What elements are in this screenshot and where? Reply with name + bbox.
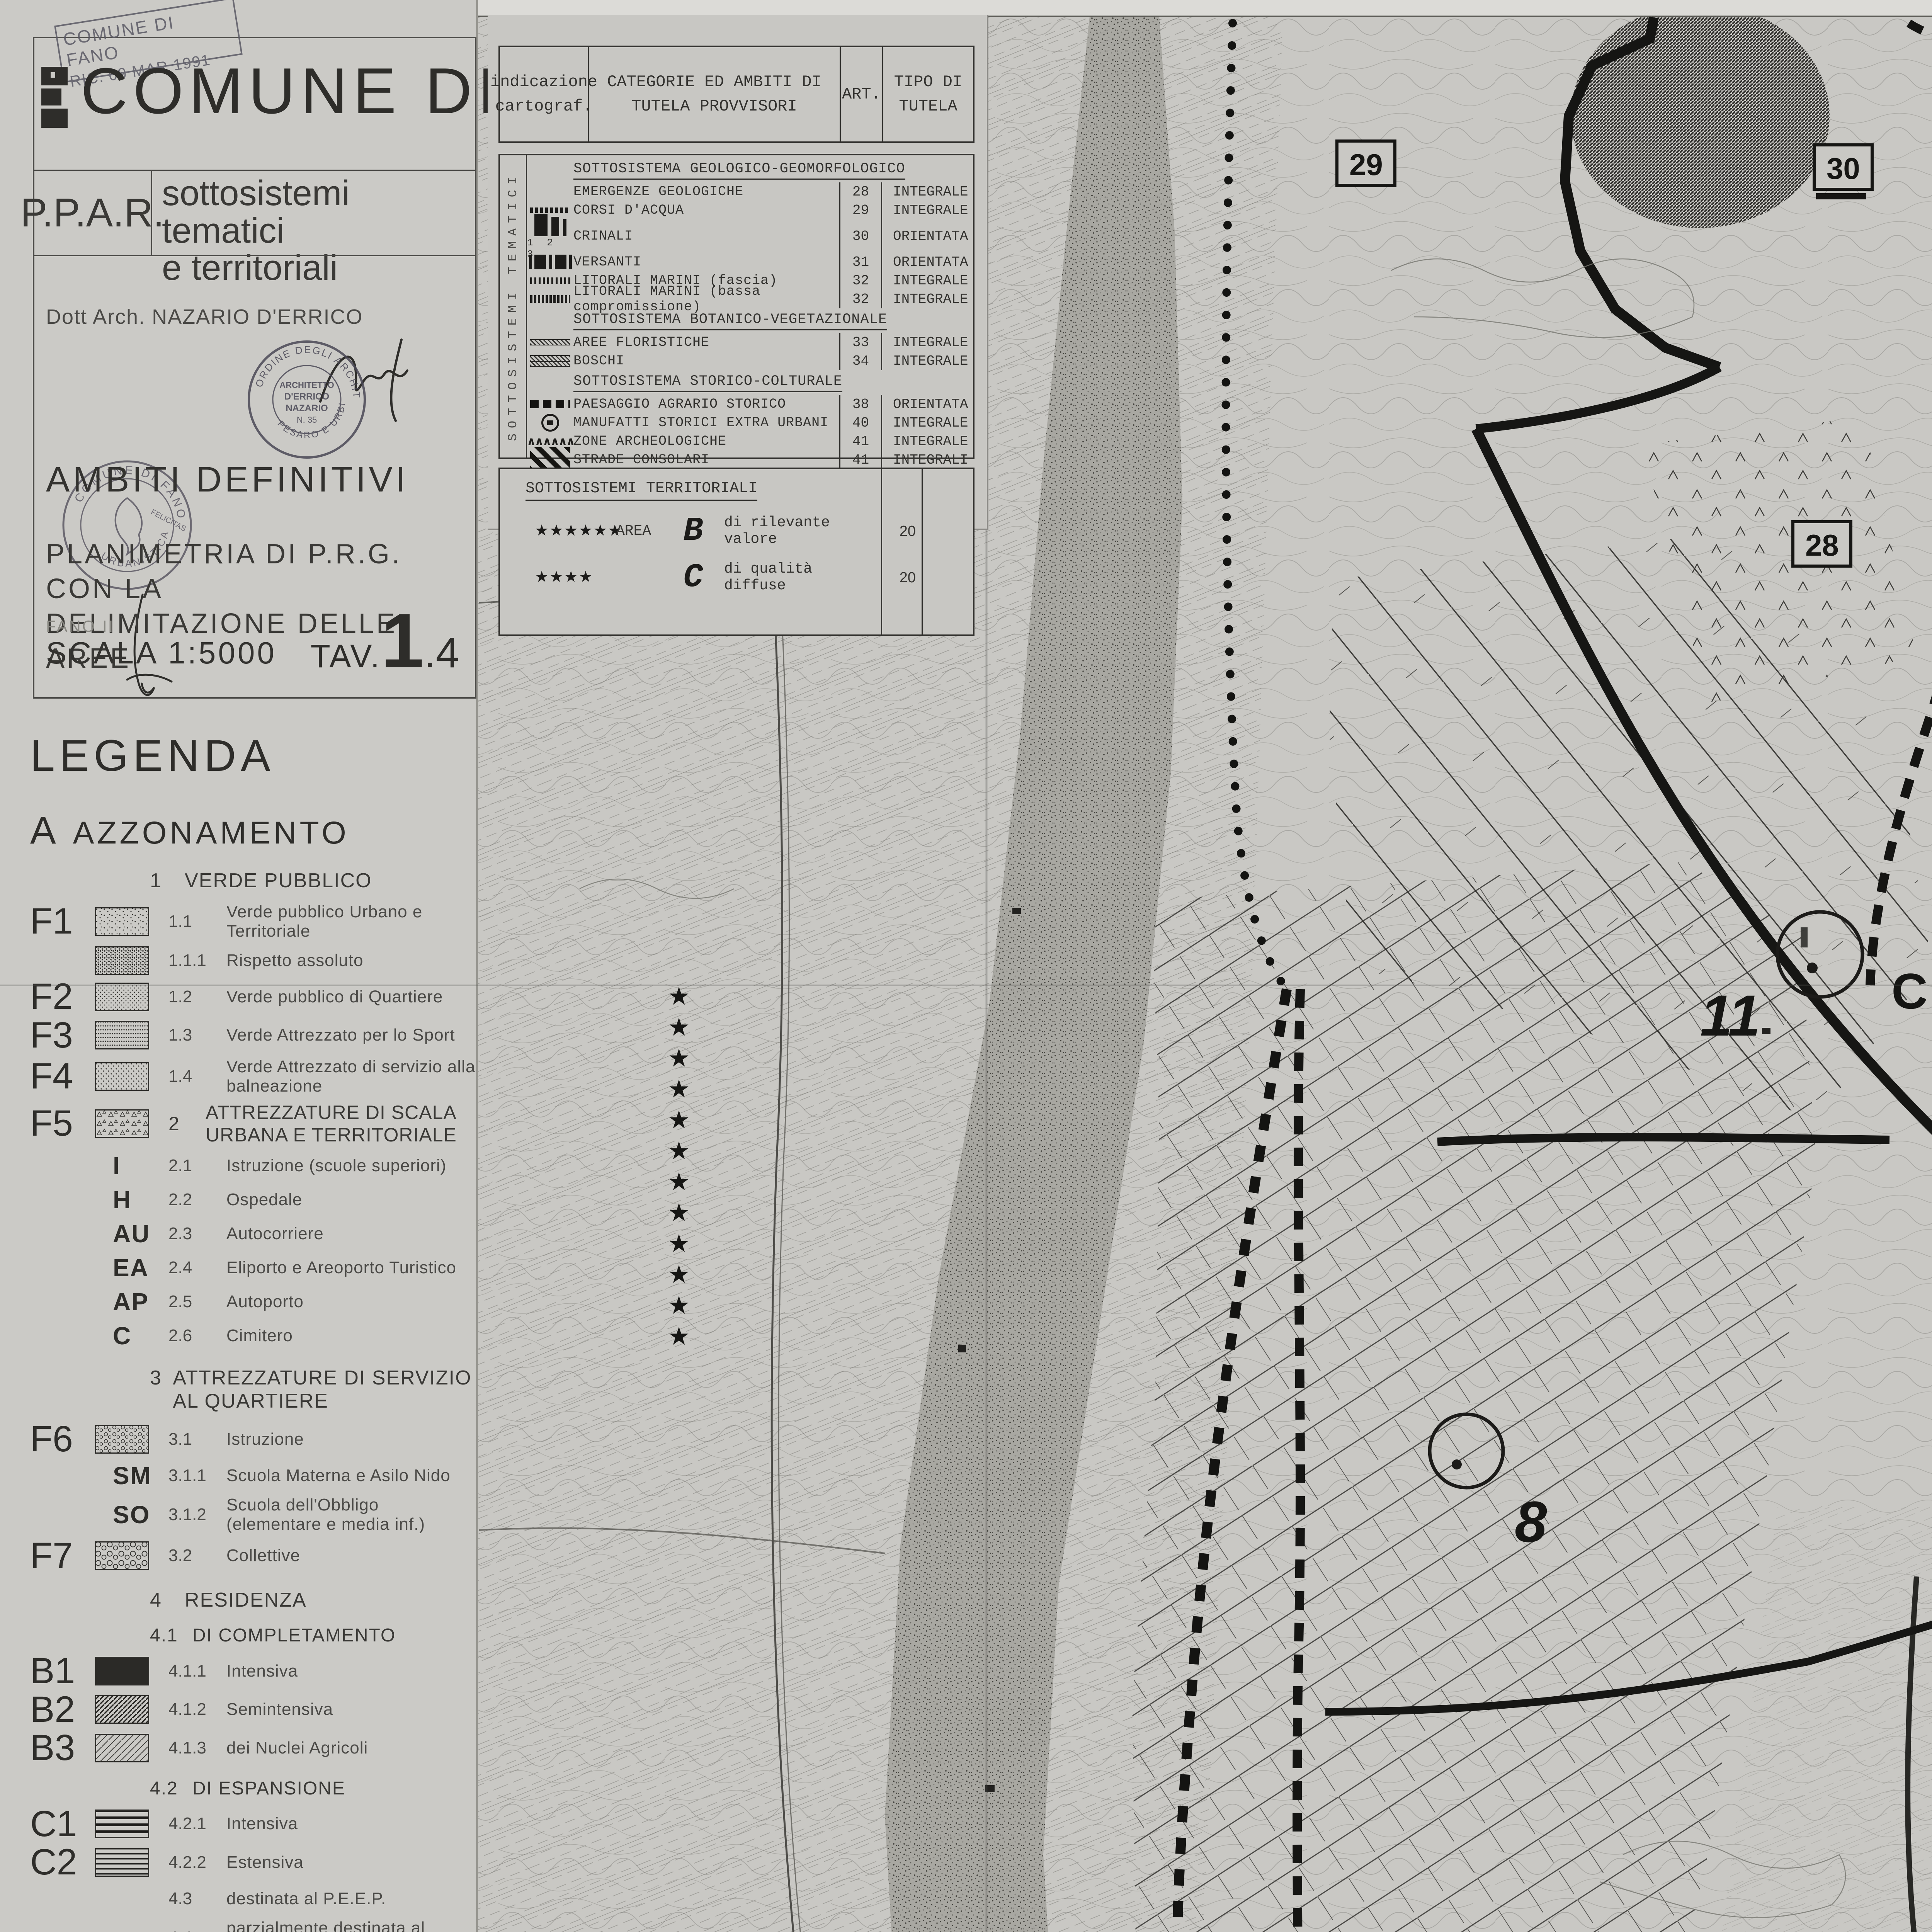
legend-item-label: parzialmente destinata al P.E.E.P. xyxy=(226,1918,476,1932)
tutela-side-label: SOTTOSISTEMI TEMATICI xyxy=(506,172,520,441)
legend-item-label: Rispetto assoluto xyxy=(226,951,476,970)
ticks2-icon xyxy=(530,295,570,303)
zone-letter-code: SO xyxy=(95,1500,150,1529)
versanti-bars-icon xyxy=(529,255,572,269)
zone-swatch-cell xyxy=(95,1810,168,1838)
legend-item-number: 2 xyxy=(168,1112,206,1135)
swatch-pat-circ-s xyxy=(95,1425,149,1454)
stamp1-center1: ARCHITETTO xyxy=(279,380,334,390)
plan-code-row: P.P.A.R. sottosistemi tematici e territo… xyxy=(34,171,475,255)
zone-swatch-cell xyxy=(95,1657,168,1685)
swatch-pat-dots-r xyxy=(95,1021,149,1049)
territoriali-rows: ★★★★★★AREABdi rilevante valore★★★★Cdi qu… xyxy=(500,508,881,634)
tutela-table-body: SOTTOSISTEMI TEMATICI SOTTOSISTEMA GEOLO… xyxy=(498,154,975,459)
tutela-article: 30 xyxy=(839,219,881,253)
well-icon xyxy=(541,414,559,432)
zone-swatch-cell: AP xyxy=(95,1287,168,1316)
tutela-category-label: PAESAGGIO AGRARIO STORICO xyxy=(573,396,839,412)
zone-swatch-cell xyxy=(95,1884,168,1913)
zone-code: C2 xyxy=(30,1846,95,1879)
legend-item-number: 2.5 xyxy=(168,1292,226,1311)
boundary-star-icon: ★ xyxy=(668,1291,690,1319)
tutela-type: INTEGRALE xyxy=(881,201,973,219)
tutela-rows: SOTTOSISTEMA GEOLOGICO-GEOMORFOLOGICOEME… xyxy=(527,158,973,457)
zone-swatch-cell: SO xyxy=(95,1500,168,1529)
tutela-type: INTEGRALE xyxy=(881,333,973,352)
tutela-type: INTEGRALE xyxy=(881,271,973,290)
legend-item-number: 4.2.2 xyxy=(168,1853,226,1872)
legend-item-number: 1.1.1 xyxy=(168,951,226,970)
legend-item-label: Eliporto e Areoporto Turistico xyxy=(226,1258,476,1277)
tutela-type: INTEGRALE xyxy=(881,290,973,308)
tutela-article: 28 xyxy=(839,182,881,201)
article-30-label: 30 xyxy=(1827,151,1860,185)
boundary-star-icon: ★ xyxy=(668,982,690,1010)
legend-item: B24.1.2Semintensiva xyxy=(30,1693,476,1726)
territoriali-art-divider xyxy=(881,469,923,634)
geological-emergency-area xyxy=(1571,4,1830,228)
legend-subgroup-header: 4.2DI ESPANSIONE xyxy=(30,1778,476,1799)
tutela-section-label: SOTTOSISTEMA BOTANICO-VEGETAZIONALE xyxy=(573,311,887,330)
legend-subgroup-header: 4.1DI COMPLETAMENTO xyxy=(30,1625,476,1646)
zone-letter-code: SM xyxy=(95,1461,151,1490)
legend-section-a-letter: A xyxy=(30,808,56,853)
legend-item: 1.1.1Rispetto assoluto xyxy=(30,946,476,975)
zone-swatch-cell: C xyxy=(95,1321,168,1350)
stamp1-center3: NAZARIO xyxy=(286,403,328,413)
legend-item: 4.4parzialmente destinata al P.E.E.P. xyxy=(30,1918,476,1932)
zone-code: F5 xyxy=(30,1107,95,1140)
tutela-type: INTEGRALE xyxy=(881,432,973,451)
squares-symbol-icon xyxy=(527,400,573,408)
swatch-pat-stip-l xyxy=(95,907,149,936)
zone-code: F6 xyxy=(30,1423,95,1456)
tutela-section: SOTTOSISTEMA STORICO-COLTURALE xyxy=(527,370,973,395)
tutela-row: LITORALI MARINI (bassa compromissione)32… xyxy=(527,290,973,308)
col-tipo: TIPO DI TUTELA xyxy=(883,47,973,141)
legend-section-a: A AZZONAMENTO xyxy=(30,808,476,853)
legend-item-label: Estensiva xyxy=(226,1853,476,1872)
tav-number-suffix: .4 xyxy=(424,629,459,677)
area-code: B xyxy=(662,512,724,550)
legend-items: 1VERDE PUBBLICOF11.1Verde pubblico Urban… xyxy=(30,869,476,1932)
zone-swatch-cell xyxy=(95,1021,168,1049)
zone-swatch-cell xyxy=(95,1848,168,1877)
legend-item-number: 3.1.2 xyxy=(168,1505,226,1524)
swatch-pat-hlines-t xyxy=(95,1848,149,1877)
territoriali-title: SOTTOSISTEMI TERRITORIALI xyxy=(526,480,757,501)
area-prefix: AREA xyxy=(616,523,662,539)
zone-letter-code: AP xyxy=(95,1287,149,1316)
sheet-note: FANO II xyxy=(46,617,114,636)
zone-swatch-cell xyxy=(95,1695,168,1724)
tutela-article: 33 xyxy=(839,333,881,352)
ticks-icon xyxy=(530,277,570,284)
comune-logo-icon xyxy=(39,65,70,130)
boundary-star-icon: ★ xyxy=(668,1137,690,1165)
legend-item-number: 4.1.3 xyxy=(168,1738,226,1758)
swatch-sw-solid-d xyxy=(95,1657,149,1685)
legend-item-label: Scuola Materna e Asilo Nido xyxy=(226,1466,476,1485)
tutela-type: INTEGRALE xyxy=(881,413,973,432)
stamp1-center4: N. 35 xyxy=(297,415,317,425)
territoriali-box: SOTTOSISTEMI TERRITORIALI ★★★★★★AREABdi … xyxy=(498,468,975,636)
zone-swatch-cell xyxy=(95,983,168,1011)
hband-symbol-icon xyxy=(527,339,573,345)
zone-letter-code: I xyxy=(95,1151,121,1180)
legend-item: SO3.1.2Scuola dell'Obbligo (elementare e… xyxy=(30,1495,476,1534)
legend-item-label: dei Nuclei Agricoli xyxy=(226,1738,476,1758)
tutela-article: 29 xyxy=(839,201,881,219)
tutela-type: INTEGRALI xyxy=(881,451,973,469)
legend-item-label: Verde pubblico di Quartiere xyxy=(226,987,476,1007)
circled-area-8-label: 8 xyxy=(1515,1489,1547,1554)
tutela-row: PAESAGGIO AGRARIO STORICO38ORIENTATA xyxy=(527,395,973,413)
zone-code: B2 xyxy=(30,1693,95,1726)
tutela-category-label: AREE FLORISTICHE xyxy=(573,335,839,350)
tutela-category-label: CRINALI xyxy=(573,228,839,244)
zone-swatch-cell: AU xyxy=(95,1219,168,1248)
boundary-star-icon: ★ xyxy=(668,1075,690,1103)
tutela-row: 1 2 3CRINALI30ORIENTATA xyxy=(527,219,973,253)
zone-swatch-cell xyxy=(95,1062,168,1091)
zone-swatch-cell xyxy=(95,1734,168,1762)
zone-swatch-cell xyxy=(95,1541,168,1570)
legend-group-number: 3 xyxy=(150,1366,173,1413)
zone-code: F7 xyxy=(30,1539,95,1573)
legend-item: B34.1.3dei Nuclei Agricoli xyxy=(30,1731,476,1765)
zone-c-label: C xyxy=(1891,963,1928,1019)
tav-label-group: TAV.1.4 xyxy=(310,610,459,677)
legend-group-label: VERDE PUBBLICO xyxy=(185,869,372,892)
legend-item-number: 3.1.1 xyxy=(168,1466,226,1485)
legend-item: H2.2Ospedale xyxy=(30,1185,476,1214)
scanned-plan-sheet: { "title_block": { "corner_stamp_line1":… xyxy=(0,0,1932,1932)
tutela-row: AREE FLORISTICHE33INTEGRALE xyxy=(527,333,973,352)
boundary-star-icon: ★ xyxy=(668,1168,690,1196)
swatch-pat-stip-d xyxy=(95,946,149,975)
legend-item-number: 1.2 xyxy=(168,987,226,1007)
swatch-pat-dots-f2 xyxy=(95,1062,149,1091)
tutela-section: SOTTOSISTEMA BOTANICO-VEGETAZIONALE xyxy=(527,308,973,333)
legend-item: 4.3destinata al P.E.E.P. xyxy=(30,1884,476,1913)
plan-code: P.P.A.R. xyxy=(34,171,150,255)
boundary-star-icon: ★ xyxy=(668,1199,690,1226)
territoriali-row: ★★★★Cdi qualità diffuse xyxy=(500,554,881,600)
crinali-symbol-icon: 1 2 3 xyxy=(527,212,573,260)
zone-letter-code: C xyxy=(95,1321,131,1350)
legend-item-number: 3.1 xyxy=(168,1430,226,1449)
none-symbol-icon xyxy=(527,190,573,194)
legend-title: LEGENDA xyxy=(30,730,476,781)
tutela-type: ORIENTATA xyxy=(881,219,973,253)
legend-item-number: 2.6 xyxy=(168,1326,226,1345)
legend-group-header: 4RESIDENZA xyxy=(30,1588,476,1612)
tav-number: 1 xyxy=(381,598,424,684)
legend-item-label: Verde Attrezzato di servizio alla balnea… xyxy=(226,1057,476,1096)
zone-code: F4 xyxy=(30,1060,95,1093)
tutela-row: BOSCHI34INTEGRALE xyxy=(527,352,973,370)
tutela-article: 38 xyxy=(839,395,881,413)
tutela-category-label: BOSCHI xyxy=(573,353,839,369)
ticks-symbol-icon xyxy=(527,277,573,284)
article-29-label: 29 xyxy=(1349,148,1383,182)
zone-swatch-cell: I xyxy=(95,1151,168,1180)
tutela-row: MANUFATTI STORICI EXTRA URBANI40INTEGRAL… xyxy=(527,413,973,432)
legend-section-a-title: AZZONAMENTO xyxy=(73,815,349,851)
tutela-category-label: EMERGENZE GEOLOGICHE xyxy=(573,184,839,199)
tutela-category-label: CORSI D'ACQUA xyxy=(573,202,839,218)
legend-item: I2.1Istruzione (scuole superiori) xyxy=(30,1151,476,1180)
swatch-pat-hlines-k xyxy=(95,1810,149,1838)
legend-item-label: Autoporto xyxy=(226,1292,476,1311)
zone-code: F3 xyxy=(30,1019,95,1052)
article-28-label: 28 xyxy=(1805,528,1839,562)
tutela-row: VERSANTI31ORIENTATA xyxy=(527,253,973,271)
legend-item: F41.4Verde Attrezzato di servizio alla b… xyxy=(30,1057,476,1096)
area-label: di qualità diffuse xyxy=(724,561,881,594)
legend-item-number: 2.1 xyxy=(168,1156,226,1175)
area-label: di rilevante valore xyxy=(724,514,881,548)
legend-item-label: Verde pubblico Urbano e Territoriale xyxy=(226,902,476,941)
swatch-sw-dot-full xyxy=(95,1884,149,1913)
tutela-row: STRADE CONSOLARI41INTEGRALI xyxy=(527,451,973,469)
tutela-row: EMERGENZE GEOLOGICHE28INTEGRALE xyxy=(527,182,973,201)
legend-item: B14.1.1Intensiva xyxy=(30,1655,476,1688)
legend-item: SM3.1.1Scuola Materna e Asilo Nido xyxy=(30,1461,476,1490)
tutela-side-label-col: SOTTOSISTEMI TEMATICI xyxy=(500,155,527,457)
legend-item-number: 1.1 xyxy=(168,912,226,931)
tav-label: TAV. xyxy=(310,638,381,674)
stamp1-center2: D'ERRICO xyxy=(284,391,329,402)
tutela-article: 41 xyxy=(839,451,881,469)
swatch-pat-tri xyxy=(95,1109,149,1138)
svg-text:ORDINE DEGLI ARCHITETTI: ORDINE DEGLI ARCHITETTI xyxy=(243,336,362,400)
tutela-article: 32 xyxy=(839,290,881,308)
zone-code: F1 xyxy=(30,905,95,938)
zigzag-icon: ∧∧∧∧∧∧ xyxy=(527,435,574,448)
architects-order-stamp: ORDINE DEGLI ARCHITETTI PESARO E URBINO … xyxy=(243,336,371,463)
legend-item-number: 2.3 xyxy=(168,1224,226,1243)
area-article: 20 xyxy=(900,570,916,586)
zone-swatch-cell: SM xyxy=(95,1461,168,1490)
legend-item: AU2.3Autocorriere xyxy=(30,1219,476,1248)
hband2-symbol-icon xyxy=(527,355,573,367)
boundary-star-icon: ★ xyxy=(668,1106,690,1134)
legend-item-label: Istruzione (scuole superiori) xyxy=(226,1156,476,1175)
tutela-section-label: SOTTOSISTEMA STORICO-COLTURALE xyxy=(573,373,842,392)
tutela-row: ∧∧∧∧∧∧ZONE ARCHEOLOGICHE41INTEGRALE xyxy=(527,432,973,451)
legend-item-label: destinata al P.E.E.P. xyxy=(226,1889,476,1908)
legend-item: F73.2Collettive xyxy=(30,1539,476,1573)
zone-letter-code: EA xyxy=(95,1253,149,1282)
scale-label: SCALA 1:5000 xyxy=(46,635,277,671)
col-art: ART. xyxy=(841,47,883,141)
crinali-bars-icon xyxy=(534,212,566,236)
zone-code: B1 xyxy=(30,1655,95,1688)
boundary-star-icon: ★ xyxy=(668,1230,690,1257)
swatch-sw-dot-part xyxy=(95,1923,149,1932)
hband2-icon xyxy=(530,355,570,367)
legend-item-number: 4.2.1 xyxy=(168,1814,226,1833)
drawing-title-line1: PLANIMETRIA DI P.R.G. CON LA xyxy=(46,537,475,606)
tutela-type: ORIENTATA xyxy=(881,253,973,271)
swatch-pat-circ-l xyxy=(95,1541,149,1570)
legend-group-label: RESIDENZA xyxy=(185,1588,307,1612)
legend-item-label: ATTREZZATURE DI SCALA URBANA E TERRITORI… xyxy=(206,1101,476,1146)
tutela-category-label: MANUFATTI STORICI EXTRA URBANI xyxy=(573,415,839,430)
zone-swatch-cell xyxy=(95,946,168,975)
zone-code: B3 xyxy=(30,1731,95,1765)
plan-subtitle: sottosistemi tematici e territoriali xyxy=(162,175,475,287)
legend-group-label: ATTREZZATURE DI SERVIZIO AL QUARTIERE xyxy=(173,1366,476,1413)
circled-area-11-label: 11 xyxy=(1700,983,1760,1048)
zone-swatch-cell: H xyxy=(95,1185,168,1214)
legend-item-number: 1.4 xyxy=(168,1067,226,1086)
tutela-type: INTEGRALE xyxy=(881,352,973,370)
tutela-row: CORSI D'ACQUA29INTEGRALE xyxy=(527,201,973,219)
legend-item: F11.1Verde pubblico Urbano e Territorial… xyxy=(30,902,476,941)
legend-subgroup-label: DI ESPANSIONE xyxy=(192,1778,345,1799)
zone-code: F2 xyxy=(30,980,95,1014)
tutela-table-header: indicazione cartograf. CATEGORIE ED AMBI… xyxy=(498,46,975,143)
zone-swatch-cell xyxy=(95,1425,168,1454)
tutela-section: SOTTOSISTEMA GEOLOGICO-GEOMORFOLOGICO xyxy=(527,158,973,182)
stars-icon: ★★★★ xyxy=(535,568,616,587)
legend-item-label: Ospedale xyxy=(226,1190,476,1209)
tutela-table-sheet: indicazione cartograf. CATEGORIE ED AMBI… xyxy=(488,15,988,530)
tutela-article: 32 xyxy=(839,271,881,290)
legend-group-number: 1 xyxy=(150,869,185,892)
legend-item: EA2.4Eliporto e Areoporto Turistico xyxy=(30,1253,476,1282)
legend-item-label: Verde Attrezzato per lo Sport xyxy=(226,1026,476,1045)
title-block: COMUNE DI FANO RIC. 09 MAR 1991 COMUNE D… xyxy=(33,37,476,699)
tutela-article: 34 xyxy=(839,352,881,370)
tutela-category-label: STRADE CONSOLARI xyxy=(573,452,839,468)
hband-icon xyxy=(530,339,570,345)
swatch-pat-dots-f xyxy=(95,983,149,1011)
area-code: C xyxy=(662,558,724,596)
col-categorie: CATEGORIE ED AMBITI DI TUTELA PROVVISORI xyxy=(589,47,841,141)
territoriali-row: ★★★★★★AREABdi rilevante valore xyxy=(500,508,881,554)
legend-item-number: 2.4 xyxy=(168,1258,226,1277)
legend-group-header: 3ATTREZZATURE DI SERVIZIO AL QUARTIERE xyxy=(30,1366,476,1413)
zone-letter-code: H xyxy=(95,1185,131,1214)
area-article: 20 xyxy=(900,523,916,540)
stamp1-arc-top: ORDINE DEGLI ARCHITETTI xyxy=(243,336,362,400)
legend-item-number: 4.4 xyxy=(168,1928,226,1932)
legend-item-label: Cimitero xyxy=(226,1326,476,1345)
tutela-category-label: VERSANTI xyxy=(573,254,839,270)
legend-item: C14.2.1Intensiva xyxy=(30,1808,476,1841)
stars-icon: ★★★★★★ xyxy=(535,522,616,541)
ambiti-definitivi-title: AMBITI DEFINITIVI xyxy=(46,459,408,500)
legend-group-header: 1VERDE PUBBLICO xyxy=(30,869,476,892)
tutela-section-label: SOTTOSISTEMA GEOLOGICO-GEOMORFOLOGICO xyxy=(573,161,905,180)
legend-item-label: Collettive xyxy=(226,1546,476,1565)
legend-item: C24.2.2Estensiva xyxy=(30,1846,476,1879)
plan-subtitle-line1: sottosistemi tematici xyxy=(162,175,475,249)
well-symbol-icon xyxy=(527,414,573,432)
legend-item-number: 4.3 xyxy=(168,1889,226,1908)
tutela-type: ORIENTATA xyxy=(881,395,973,413)
swatch-pat-diag-l xyxy=(95,1734,149,1762)
col-indicazione: indicazione cartograf. xyxy=(500,47,589,141)
title-and-legend-sheet: COMUNE DI FANO RIC. 09 MAR 1991 COMUNE D… xyxy=(0,0,478,1932)
legend-item-number: 3.2 xyxy=(168,1546,226,1565)
boundary-star-icon: ★ xyxy=(668,1013,690,1041)
legend-item-number: 4.1.1 xyxy=(168,1662,226,1681)
legend-subgroup-number: 4.1 xyxy=(150,1625,192,1646)
legend-group-number: 4 xyxy=(150,1588,185,1612)
legend-subgroup-label: DI COMPLETAMENTO xyxy=(192,1625,396,1646)
zone-swatch-cell xyxy=(95,1923,168,1932)
versanti-symbol-icon xyxy=(527,255,573,269)
legend-item-label: Autocorriere xyxy=(226,1224,476,1243)
zigzag-symbol-icon: ∧∧∧∧∧∧ xyxy=(527,435,573,448)
legend-item-label: Istruzione xyxy=(226,1430,476,1449)
tutela-category-label: ZONE ARCHEOLOGICHE xyxy=(573,434,839,449)
boundary-star-icon: ★ xyxy=(668,1260,690,1288)
legend-item-label: Scuola dell'Obbligo (elementare e media … xyxy=(226,1495,476,1534)
zone-code: C1 xyxy=(30,1808,95,1841)
legend-item-number: 4.1.2 xyxy=(168,1700,226,1719)
legend-item-label: Intensiva xyxy=(226,1814,476,1833)
legend-subgroup-number: 4.2 xyxy=(150,1778,192,1799)
legend-item: F63.1Istruzione xyxy=(30,1423,476,1456)
boundary-star-icon: ★ xyxy=(668,1322,690,1350)
tutela-article: 41 xyxy=(839,432,881,451)
no-symbol xyxy=(531,190,570,194)
zone-swatch-cell: EA xyxy=(95,1253,168,1282)
legend: LEGENDA A AZZONAMENTO 1VERDE PUBBLICOF11… xyxy=(0,696,476,1932)
legend-item-label: Semintensiva xyxy=(226,1700,476,1719)
legend-item: AP2.5Autoporto xyxy=(30,1287,476,1316)
ticks2-symbol-icon xyxy=(527,295,573,303)
zone-swatch-cell xyxy=(95,907,168,936)
squares-icon xyxy=(530,400,570,408)
legend-item-number: 2.2 xyxy=(168,1190,226,1209)
tutela-category-label: LITORALI MARINI (bassa compromissione) xyxy=(573,284,839,315)
legend-item: F52ATTREZZATURE DI SCALA URBANA E TERRIT… xyxy=(30,1101,476,1146)
zone-swatch-cell xyxy=(95,1109,168,1138)
swatch-pat-diag-d xyxy=(95,1695,149,1724)
boundary-star-icon: ★ xyxy=(668,1044,690,1072)
zone-letter-code: AU xyxy=(95,1219,150,1248)
legend-item-number: 1.3 xyxy=(168,1026,226,1045)
tutela-article: 40 xyxy=(839,413,881,432)
tutela-type: INTEGRALE xyxy=(881,182,973,201)
tutela-article: 31 xyxy=(839,253,881,271)
legend-item: F21.2Verde pubblico di Quartiere xyxy=(30,980,476,1014)
legend-item: F31.3Verde Attrezzato per lo Sport xyxy=(30,1019,476,1052)
legend-item: C2.6Cimitero xyxy=(30,1321,476,1350)
legend-item-label: Intensiva xyxy=(226,1662,476,1681)
